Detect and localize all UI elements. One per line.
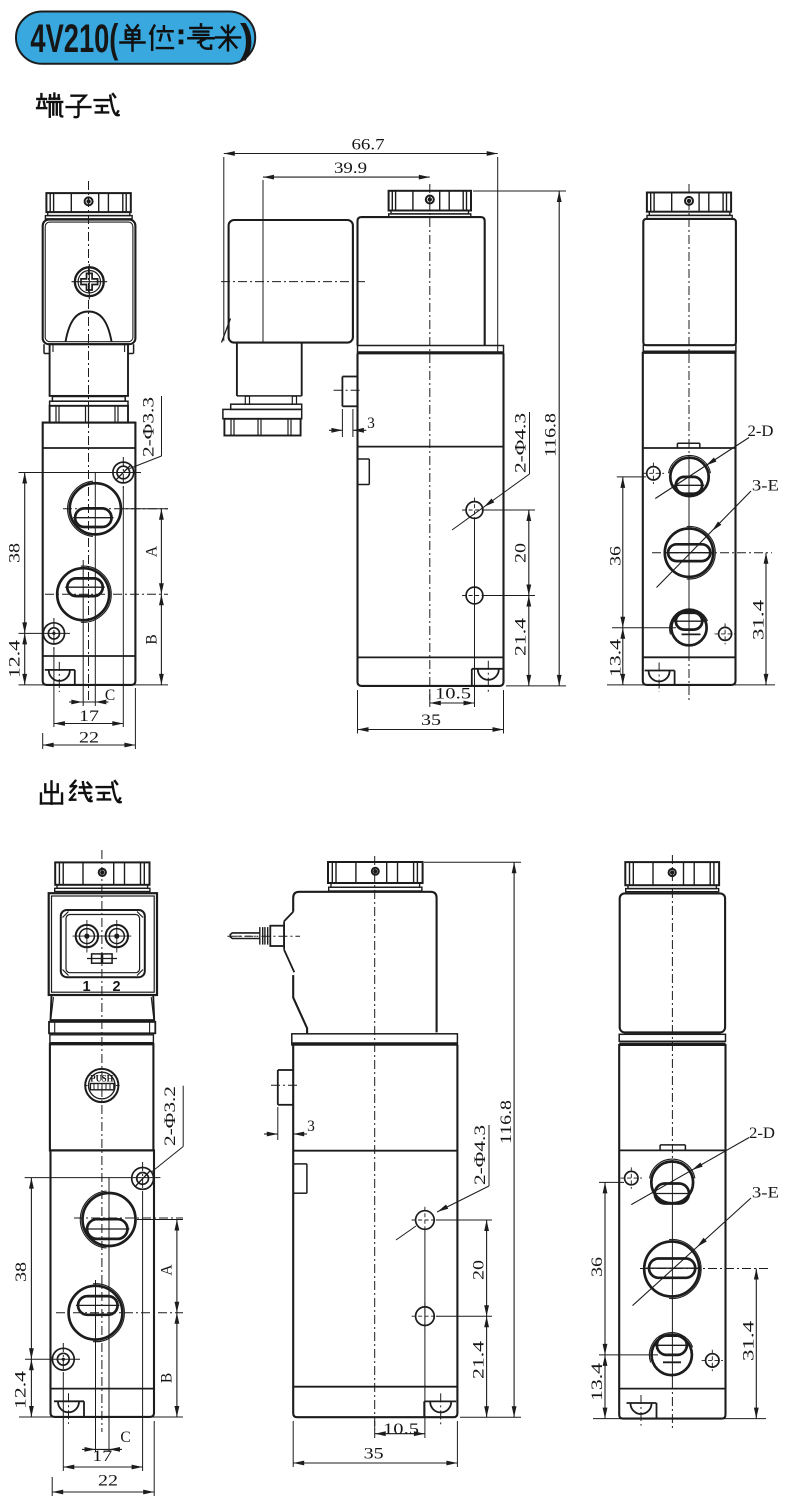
- svg-text:20: 20: [471, 1260, 488, 1280]
- svg-text:C: C: [105, 687, 115, 704]
- svg-text:C: C: [120, 1429, 130, 1446]
- svg-text:36: 36: [589, 1257, 606, 1277]
- svg-text:2-D: 2-D: [749, 1125, 775, 1142]
- svg-text:1: 1: [82, 979, 90, 995]
- svg-text:22: 22: [98, 1473, 118, 1490]
- svg-text:116.8: 116.8: [498, 1100, 515, 1144]
- svg-text:17: 17: [79, 708, 99, 725]
- svg-text:31.4: 31.4: [740, 1321, 757, 1361]
- svg-text:66.7: 66.7: [352, 137, 385, 154]
- svg-text:A: A: [158, 1264, 175, 1276]
- svg-text:12.4: 12.4: [12, 1371, 29, 1409]
- svg-text:21.4: 21.4: [512, 618, 529, 656]
- svg-text:36: 36: [607, 546, 624, 566]
- svg-text:20: 20: [512, 543, 529, 563]
- svg-text:2: 2: [112, 979, 120, 995]
- svg-text:13.4: 13.4: [589, 1363, 606, 1401]
- svg-text:B: B: [158, 1373, 175, 1383]
- svg-text:116.8: 116.8: [543, 413, 560, 457]
- svg-text:10.5: 10.5: [383, 1421, 419, 1438]
- svg-text:2-Φ4.3: 2-Φ4.3: [472, 1125, 489, 1185]
- svg-text:A: A: [143, 545, 160, 557]
- svg-text:4V210(: 4V210(: [30, 17, 118, 61]
- svg-text:B: B: [143, 634, 160, 644]
- svg-text:3: 3: [367, 415, 375, 432]
- svg-text:17: 17: [92, 1448, 112, 1465]
- svg-text:38: 38: [7, 543, 24, 563]
- svg-text:31.4: 31.4: [751, 600, 768, 640]
- svg-text:13.4: 13.4: [607, 639, 624, 677]
- svg-text:39.9: 39.9: [334, 160, 367, 177]
- svg-text:21.4: 21.4: [471, 1341, 488, 1379]
- svg-text:2-Φ4.3: 2-Φ4.3: [513, 413, 530, 473]
- svg-text:2-Φ3.2: 2-Φ3.2: [162, 1086, 179, 1146]
- svg-text:10.5: 10.5: [435, 686, 471, 703]
- svg-text:2-Φ3.3: 2-Φ3.3: [141, 397, 158, 457]
- svg-text:35: 35: [421, 712, 441, 729]
- svg-text:3-E: 3-E: [752, 1185, 779, 1202]
- svg-text:3: 3: [307, 1118, 315, 1135]
- svg-text:2-D: 2-D: [748, 423, 774, 440]
- svg-text:12.4: 12.4: [7, 640, 24, 678]
- svg-text:): ): [240, 17, 253, 61]
- svg-text:35: 35: [364, 1446, 384, 1463]
- svg-text:22: 22: [79, 730, 99, 747]
- svg-text:38: 38: [13, 1262, 30, 1282]
- svg-text:3-E: 3-E: [752, 478, 779, 495]
